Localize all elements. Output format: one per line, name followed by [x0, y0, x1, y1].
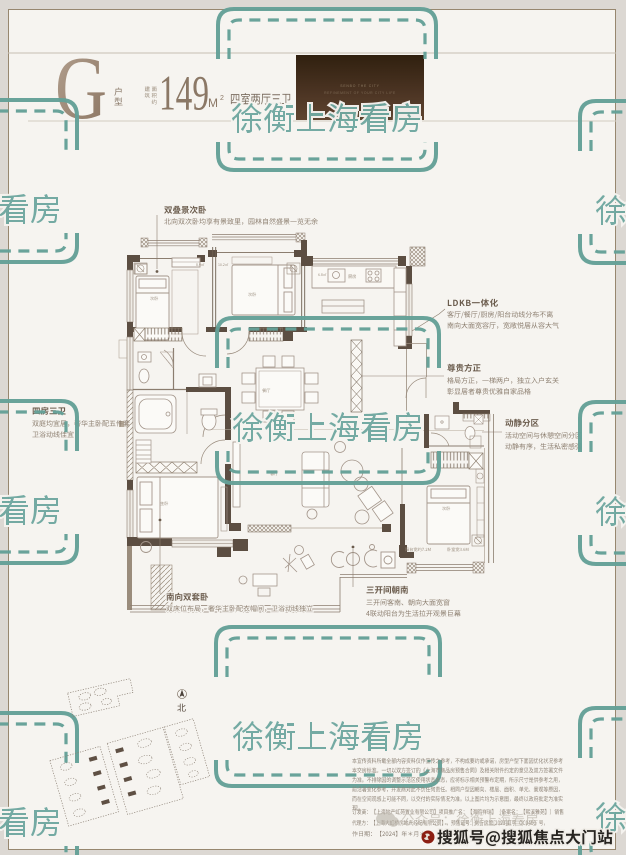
- svg-text:149: 149: [159, 65, 209, 121]
- svg-text:G: G: [55, 39, 107, 138]
- svg-text:SENBO THE CITY: SENBO THE CITY: [340, 84, 379, 88]
- svg-text:2: 2: [220, 95, 224, 102]
- svg-text:REFINEMENT OF YOUR CITY LIFE: REFINEMENT OF YOUR CITY LIFE: [324, 91, 396, 95]
- svg-text:M: M: [208, 96, 218, 110]
